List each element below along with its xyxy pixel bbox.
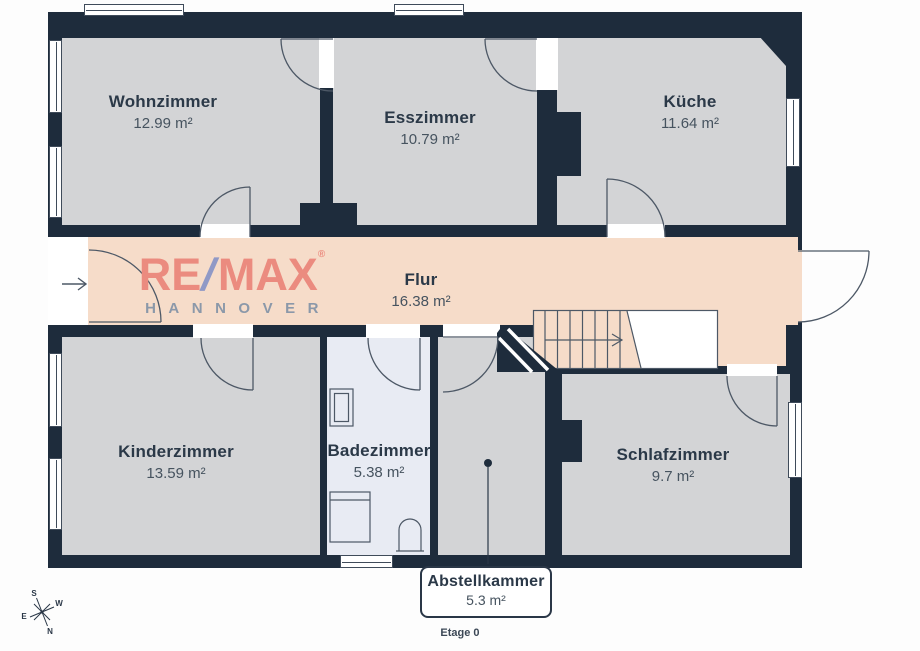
window bbox=[49, 458, 62, 530]
compass-s: S bbox=[31, 589, 37, 598]
label-wohnzimmer: Wohnzimmer 12.99 m² bbox=[109, 92, 217, 132]
registered-mark: ® bbox=[318, 250, 325, 260]
door-opening bbox=[193, 324, 253, 338]
window bbox=[84, 4, 184, 16]
chimney-block bbox=[562, 420, 582, 462]
door-opening bbox=[727, 364, 777, 376]
remax-watermark: RE / MAX ® HANNOVER bbox=[112, 252, 352, 317]
door-opening bbox=[443, 324, 500, 338]
floor-caption: Etage 0 bbox=[0, 627, 920, 639]
room-abstellkammer bbox=[438, 337, 545, 555]
label-flur: Flur 16.38 m² bbox=[391, 270, 450, 310]
compass-e: E bbox=[21, 612, 27, 621]
window bbox=[788, 402, 802, 478]
brand-city: HANNOVER bbox=[112, 300, 352, 317]
floorplan-canvas: S W N E Wohnzimmer 12.99 m² Esszimmer 10… bbox=[0, 0, 920, 651]
door-opening bbox=[319, 38, 334, 88]
label-kueche: Küche 11.64 m² bbox=[661, 92, 719, 132]
window bbox=[49, 40, 62, 113]
brand-re: RE bbox=[139, 252, 202, 297]
entrance-recess bbox=[48, 237, 88, 325]
label-schlafzimmer: Schlafzimmer 9.7 m² bbox=[617, 445, 730, 485]
abstellkammer-callout: Abstellkammer 5.3 m² bbox=[420, 566, 552, 618]
window bbox=[394, 4, 464, 16]
door-opening bbox=[366, 324, 420, 338]
window bbox=[49, 146, 62, 218]
label-kinderzimmer: Kinderzimmer 13.59 m² bbox=[118, 442, 234, 482]
flur-extension bbox=[718, 325, 786, 366]
door-opening bbox=[607, 224, 665, 238]
door-opening bbox=[200, 224, 250, 238]
chimney-block bbox=[300, 203, 357, 225]
chimney-block bbox=[557, 112, 581, 176]
window bbox=[340, 555, 393, 568]
brand-wordmark: RE / MAX ® bbox=[112, 252, 352, 297]
door-opening bbox=[536, 38, 558, 90]
label-esszimmer: Esszimmer 10.79 m² bbox=[384, 108, 476, 148]
label-badezimmer: Badezimmer 5.38 m² bbox=[327, 441, 430, 481]
door-opening bbox=[786, 250, 802, 322]
compass-w: W bbox=[55, 599, 63, 608]
brand-max: MAX bbox=[218, 252, 318, 297]
window bbox=[49, 353, 62, 427]
window bbox=[786, 98, 800, 167]
